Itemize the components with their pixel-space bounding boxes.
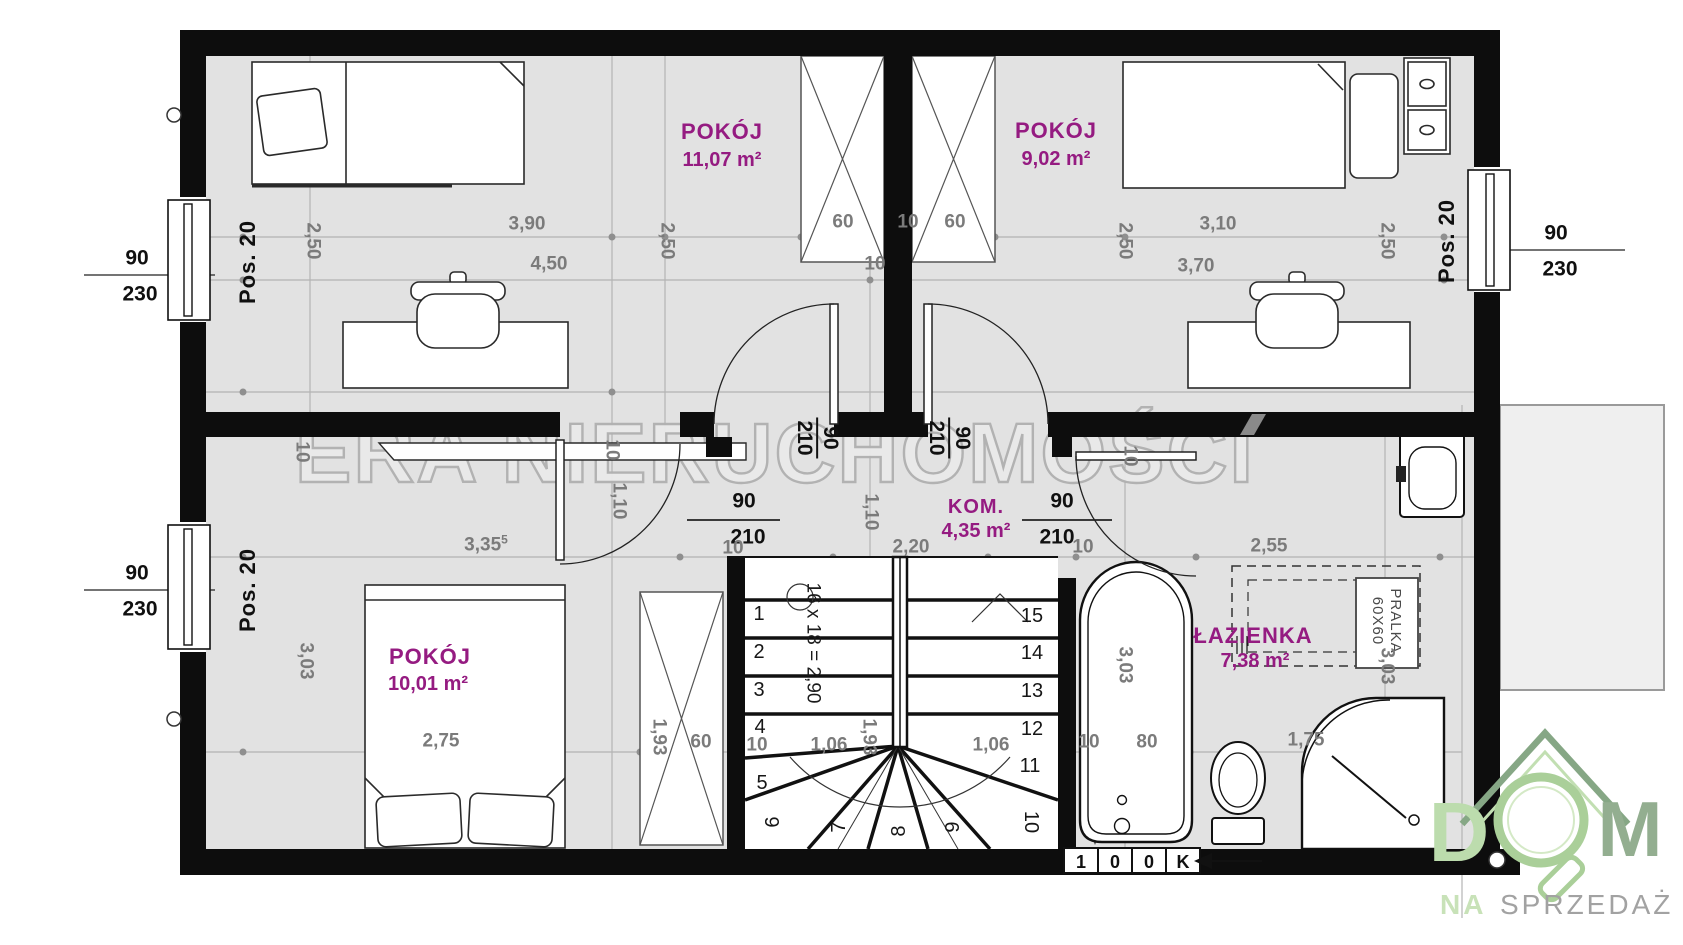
dim-label: 3,03 — [297, 643, 316, 680]
room-label-pokoj-3: POKÓJ — [389, 646, 471, 668]
dim-label: 1,10 — [610, 483, 629, 520]
dim-label: 10 — [1121, 445, 1140, 466]
step-number: 5 — [756, 773, 767, 793]
dim-label: 10 — [864, 255, 885, 274]
door2-height: 210 — [924, 417, 950, 458]
room-area-kom: 4,35 m² — [942, 521, 1011, 541]
dim-label: 10 — [722, 539, 743, 558]
dim-label: 1,93 — [650, 719, 669, 756]
dim-label: 3,70 — [1178, 257, 1215, 276]
step-number: 6 — [763, 816, 783, 827]
door1-size: 90 210 — [792, 417, 842, 458]
dim-label: 2,50 — [1116, 223, 1135, 260]
door2-size: 90 210 — [924, 417, 974, 458]
step-number: 1 — [753, 604, 764, 624]
dim-label: 2,75 — [423, 732, 460, 751]
step-number: 10 — [1021, 811, 1041, 833]
window3-pos: Pos. 20 — [1436, 199, 1458, 283]
window3-width: 90 — [1544, 223, 1567, 244]
step-number: 14 — [1021, 643, 1043, 663]
dim-label: 2,50 — [1378, 223, 1397, 260]
dim-label: 60 — [690, 733, 711, 752]
window1-width: 90 — [125, 248, 148, 269]
window1-pos: Pos. 20 — [237, 220, 259, 304]
washer-label-line2: 60X60 — [1368, 588, 1386, 653]
step-number: 13 — [1021, 681, 1043, 701]
level-box-label: 0 — [1110, 853, 1120, 871]
dim-label: 10 — [603, 439, 622, 460]
dim-label: 1,06 — [811, 736, 848, 755]
dim-label: 10 — [293, 441, 312, 462]
dim-label: 2,50 — [304, 223, 323, 260]
room-label-pokoj-2: POKÓJ — [1015, 120, 1097, 142]
dim-label: 1,93 — [860, 719, 879, 756]
step-number: 15 — [1021, 606, 1043, 626]
room-area-pokoj-3: 10,01 m² — [388, 674, 468, 694]
step-number: 12 — [1021, 719, 1043, 739]
dim-label: 3,03 — [1116, 647, 1135, 684]
door3-width: 90 — [732, 491, 755, 512]
door1-height: 210 — [792, 417, 818, 458]
dim-label: 60 — [832, 213, 853, 232]
step-number: 2 — [753, 642, 764, 662]
window2-pos: Pos. 20 — [237, 548, 259, 632]
dim-label: 3,355 — [464, 533, 508, 554]
level-box-label: 0 — [1144, 853, 1154, 871]
washer-label-line1: PRALKA — [1386, 588, 1404, 653]
step-number: 4 — [754, 717, 765, 737]
door2-width: 90 — [950, 426, 974, 449]
window2-width: 90 — [125, 563, 148, 584]
window1-height: 230 — [122, 284, 157, 305]
dim-label: 80 — [1136, 733, 1157, 752]
dim-label: 1,10 — [862, 494, 881, 531]
room-label-pokoj-1: POKÓJ — [681, 121, 763, 143]
room-area-lazienka: 7,38 m² — [1221, 651, 1290, 671]
room-area-pokoj-2: 9,02 m² — [1022, 149, 1091, 169]
step-number: 3 — [753, 680, 764, 700]
level-box-label: K — [1177, 853, 1190, 871]
door4-height: 210 — [1039, 527, 1074, 548]
dim-label: 2,55 — [1251, 537, 1288, 556]
stair-formula: 16 x 18 = 2,90 — [804, 583, 823, 704]
level-box-label: 1 — [1076, 853, 1086, 871]
step-number: 8 — [889, 825, 909, 836]
dim-label: 2,20 — [893, 538, 930, 557]
dim-label: 1,06 — [973, 736, 1010, 755]
window3-height: 230 — [1542, 259, 1577, 280]
room-label-kom: KOM. — [948, 497, 1004, 517]
room-label-lazienka: ŁAZIENKA — [1193, 625, 1312, 647]
dim-label: 10 — [746, 736, 767, 755]
washer-label: PRALKA 60X60 — [1368, 588, 1404, 653]
dim-label: 10 — [1078, 733, 1099, 752]
dim-label: 10 — [897, 213, 918, 232]
dim-label: 4,50 — [531, 255, 568, 274]
dim-label: 3,03 — [1378, 648, 1397, 685]
labels-layer: POKÓJ 11,07 m² POKÓJ 9,02 m² KOM. 4,35 m… — [0, 0, 1683, 945]
dim-label: 2,50 — [658, 223, 677, 260]
step-number: 9 — [943, 821, 963, 832]
dim-label: 10 — [1072, 538, 1093, 557]
door4-width: 90 — [1050, 491, 1073, 512]
door1-width: 90 — [818, 426, 842, 449]
dim-label: 3,90 — [509, 215, 546, 234]
floorplan-page: ERA NIERUCHOMOŚCI — [0, 0, 1683, 945]
room-area-pokoj-1: 11,07 m² — [683, 150, 762, 170]
dim-label: 60 — [944, 213, 965, 232]
step-number: 11 — [1020, 756, 1041, 776]
step-number: 7 — [829, 821, 849, 832]
window2-height: 230 — [122, 599, 157, 620]
dim-label: 1,75 — [1288, 731, 1325, 750]
dim-label: 3,10 — [1200, 215, 1237, 234]
